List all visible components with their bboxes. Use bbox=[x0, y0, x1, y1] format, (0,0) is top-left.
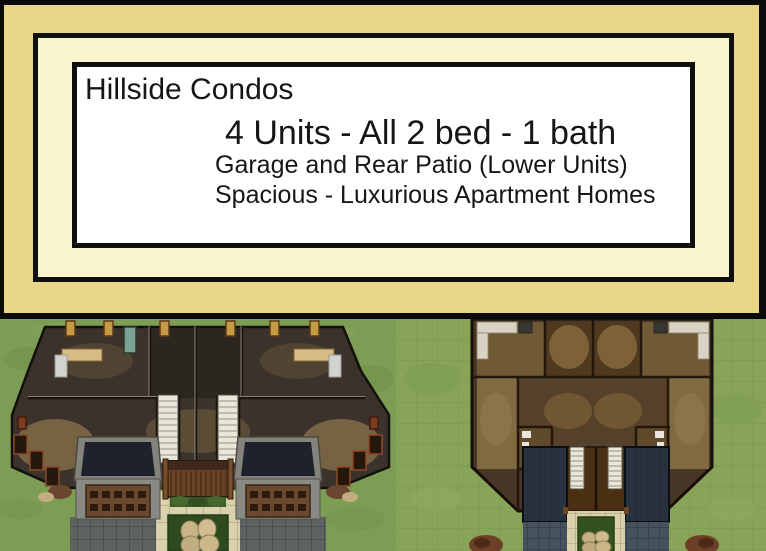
stairs-topdown-right bbox=[608, 447, 622, 489]
screenshot-row: TheSims Resource bbox=[0, 319, 766, 551]
lot-units-line: 4 Units - All 2 bed - 1 bath bbox=[225, 114, 616, 152]
entry-topdown bbox=[567, 447, 625, 511]
walkway-topdown bbox=[563, 507, 629, 551]
garage-roof-left-topdown bbox=[523, 447, 567, 522]
garage-left bbox=[74, 437, 162, 519]
garage-right bbox=[234, 437, 322, 519]
screenshot-root: Hillside Condos 4 Units - All 2 bed - 1 … bbox=[0, 0, 766, 551]
stairs-left-unit bbox=[158, 395, 178, 463]
landscape-rocks bbox=[181, 519, 219, 551]
topdown-view-screenshot bbox=[396, 319, 766, 551]
info-text-box: Hillside Condos 4 Units - All 2 bed - 1 … bbox=[72, 62, 695, 248]
info-banner: Hillside Condos 4 Units - All 2 bed - 1 … bbox=[0, 0, 766, 319]
lot-title: Hillside Condos bbox=[85, 73, 293, 107]
garage-roof-right-topdown bbox=[625, 447, 669, 522]
isometric-view-screenshot bbox=[0, 319, 396, 551]
stairs-right-unit bbox=[218, 395, 238, 463]
lot-features-line: Garage and Rear Patio (Lower Units) bbox=[215, 150, 628, 180]
lot-tagline: Spacious - Luxurious Apartment Homes bbox=[215, 180, 656, 210]
stairs-topdown-left bbox=[570, 447, 584, 489]
driveway-left-topdown bbox=[523, 522, 567, 551]
driveway-right-topdown bbox=[625, 522, 669, 551]
entry-trellis bbox=[163, 459, 233, 507]
